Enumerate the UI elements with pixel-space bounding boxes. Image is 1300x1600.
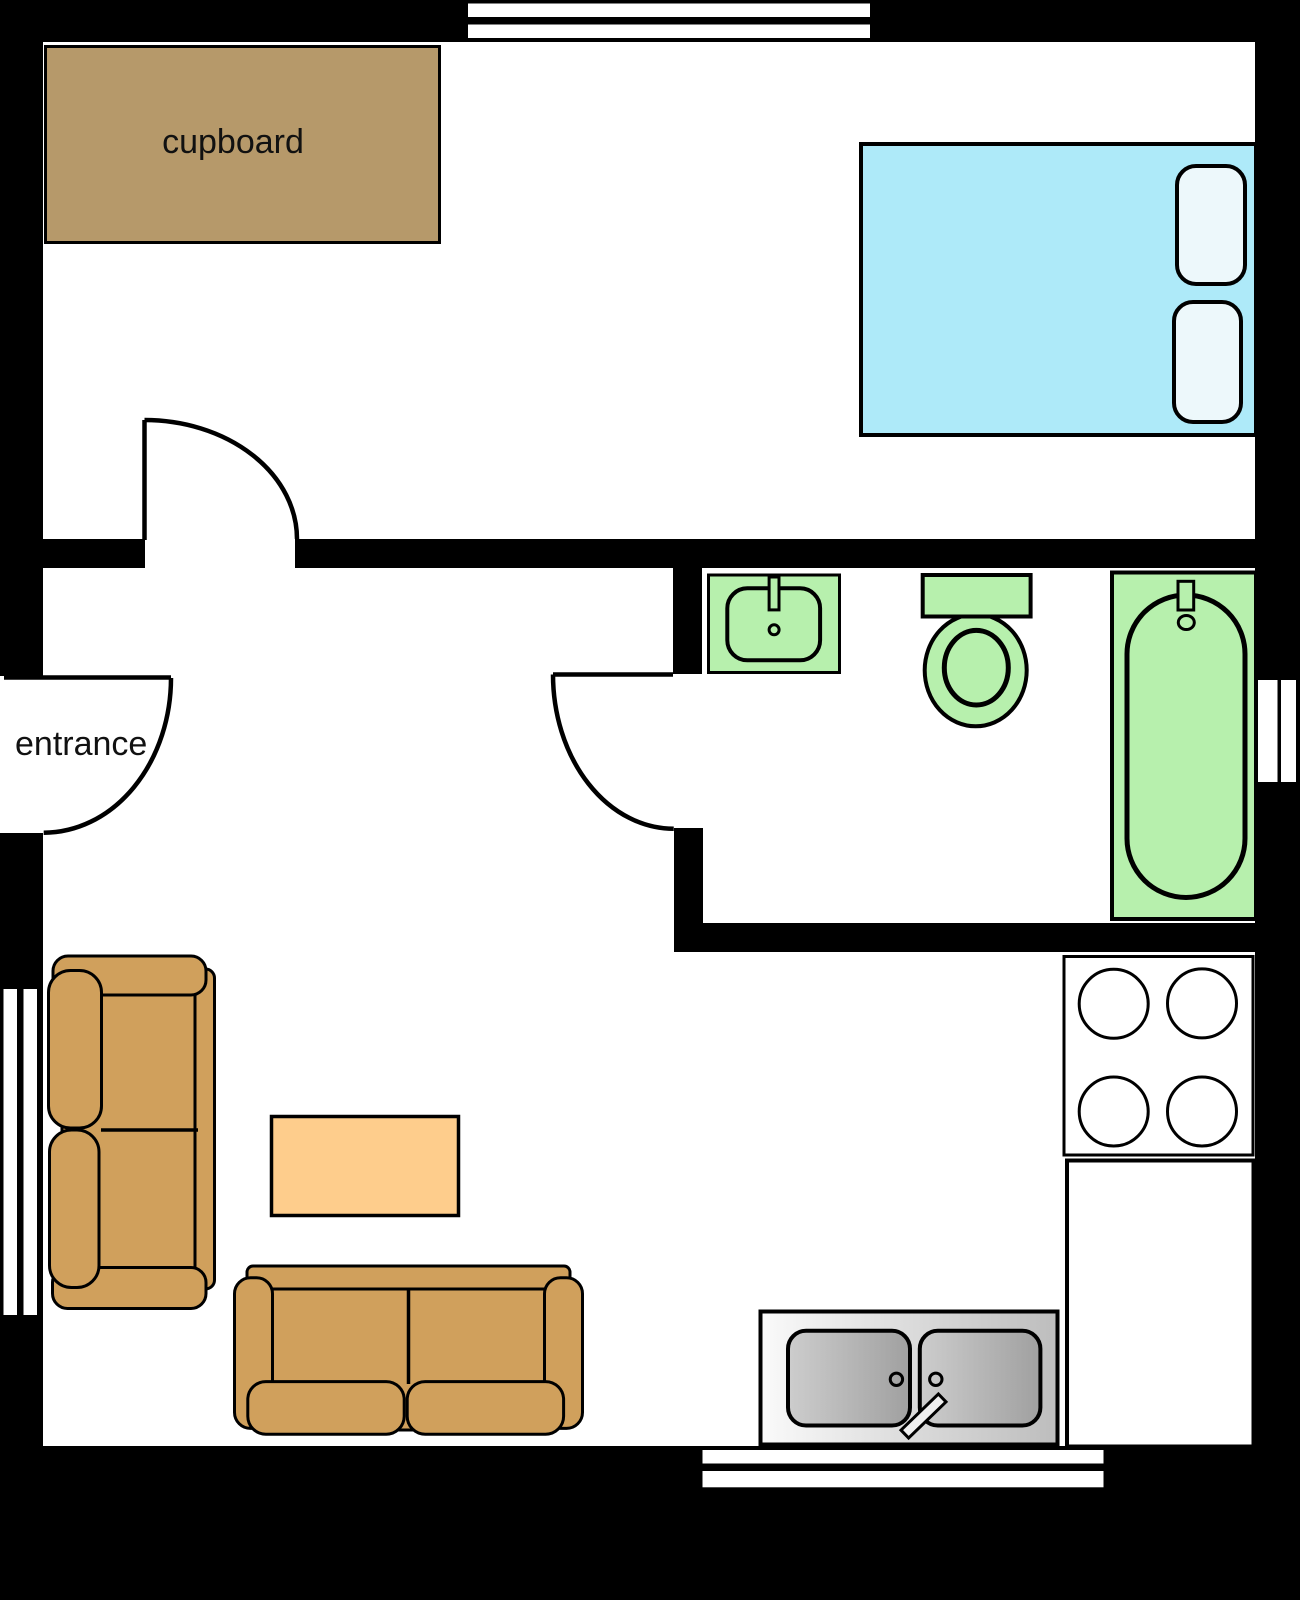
svg-text:cupboard: cupboard [162, 123, 304, 161]
svg-text:entrance: entrance [15, 725, 147, 763]
